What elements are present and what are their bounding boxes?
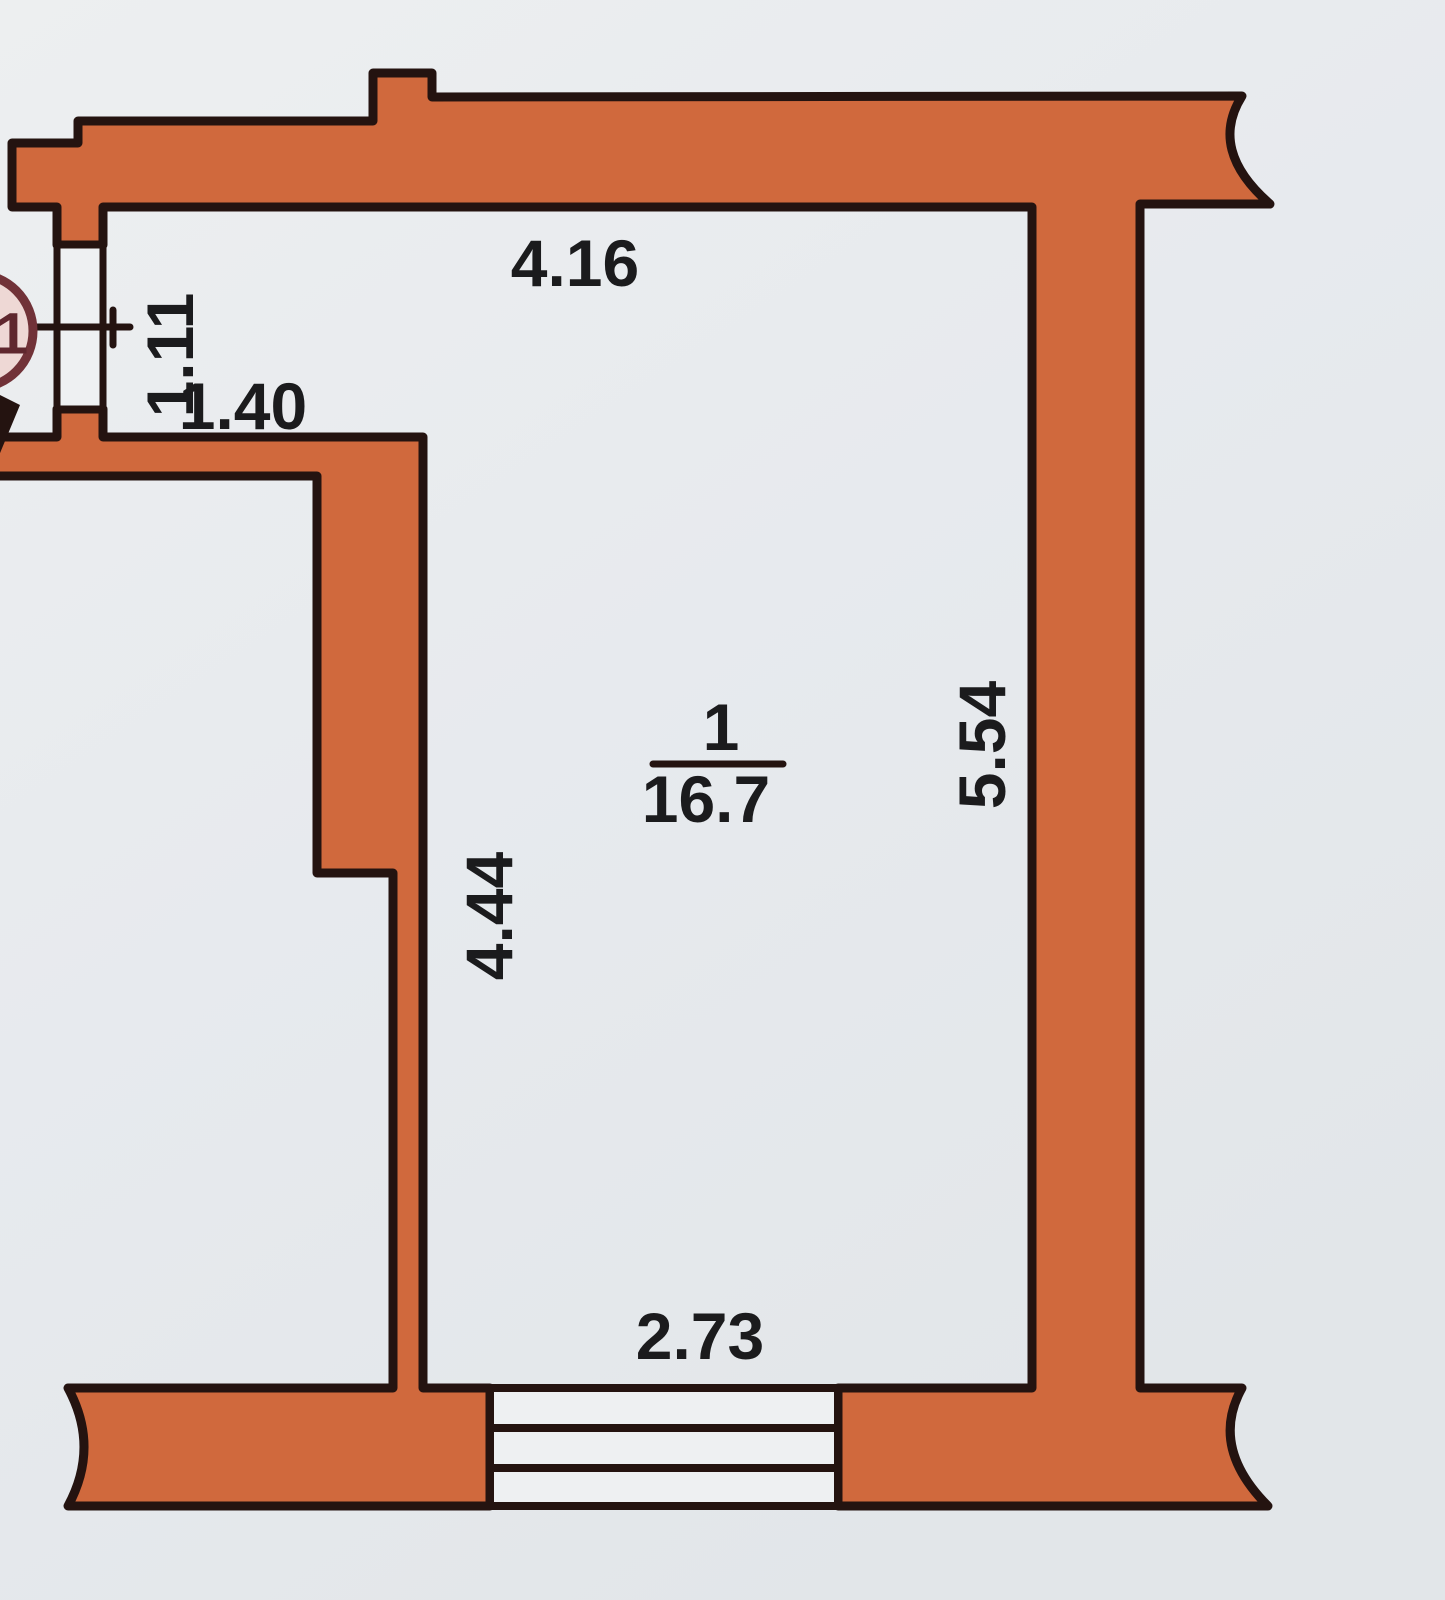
scanned-floor-plan: 1 4.16 1.11 1.40 5.54 4.44 2.73 1 16.7 <box>0 0 1445 1600</box>
room-number: 1 <box>703 690 740 764</box>
window-symbol <box>490 1388 838 1506</box>
dimension-left-height: 4.44 <box>452 851 526 980</box>
dimension-top-width: 4.16 <box>511 226 639 300</box>
room-area: 16.7 <box>642 762 770 836</box>
dimension-right-height: 5.54 <box>945 680 1019 809</box>
dimension-alcove-width: 1.40 <box>179 369 307 443</box>
floor-plan-canvas: 1 4.16 1.11 1.40 5.54 4.44 2.73 1 16.7 <box>0 0 1445 1600</box>
dimension-bottom-width: 2.73 <box>636 1299 764 1373</box>
axis-marker-label: 1 <box>0 302 28 367</box>
window-frame <box>490 1388 838 1506</box>
